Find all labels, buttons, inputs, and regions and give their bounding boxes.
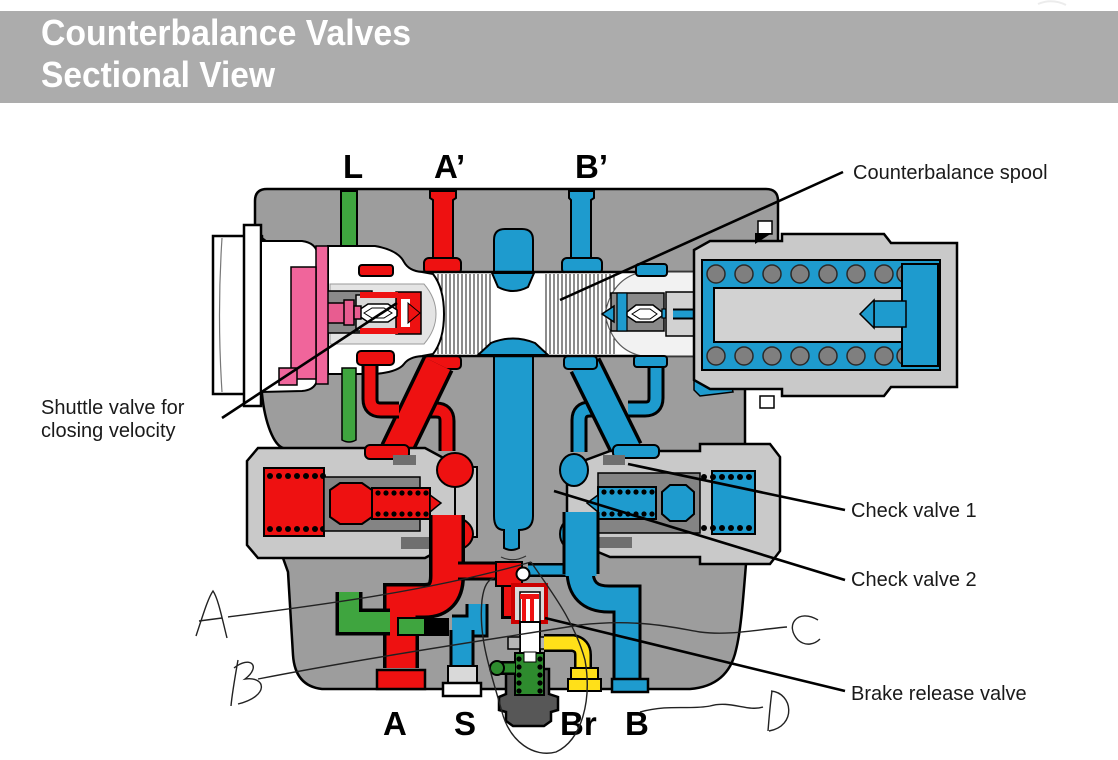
svg-text:Counterbalance Valves: Counterbalance Valves xyxy=(41,12,411,53)
svg-text:Brake release valve: Brake release valve xyxy=(851,683,1027,705)
svg-text:Counterbalance spool: Counterbalance spool xyxy=(853,162,1048,184)
svg-text:B’: B’ xyxy=(575,148,608,185)
svg-text:Check valve 1: Check valve 1 xyxy=(851,500,977,522)
svg-text:Shuttle valve for: Shuttle valve for xyxy=(41,397,185,419)
svg-text:L: L xyxy=(343,148,363,185)
svg-text:Check valve 2: Check valve 2 xyxy=(851,569,977,591)
svg-text:closing velocity: closing velocity xyxy=(41,420,176,442)
svg-text:S: S xyxy=(454,705,476,742)
svg-text:Sectional View: Sectional View xyxy=(41,54,276,95)
svg-text:Br: Br xyxy=(560,705,597,742)
svg-text:A: A xyxy=(383,705,407,742)
svg-text:A’: A’ xyxy=(434,148,465,185)
